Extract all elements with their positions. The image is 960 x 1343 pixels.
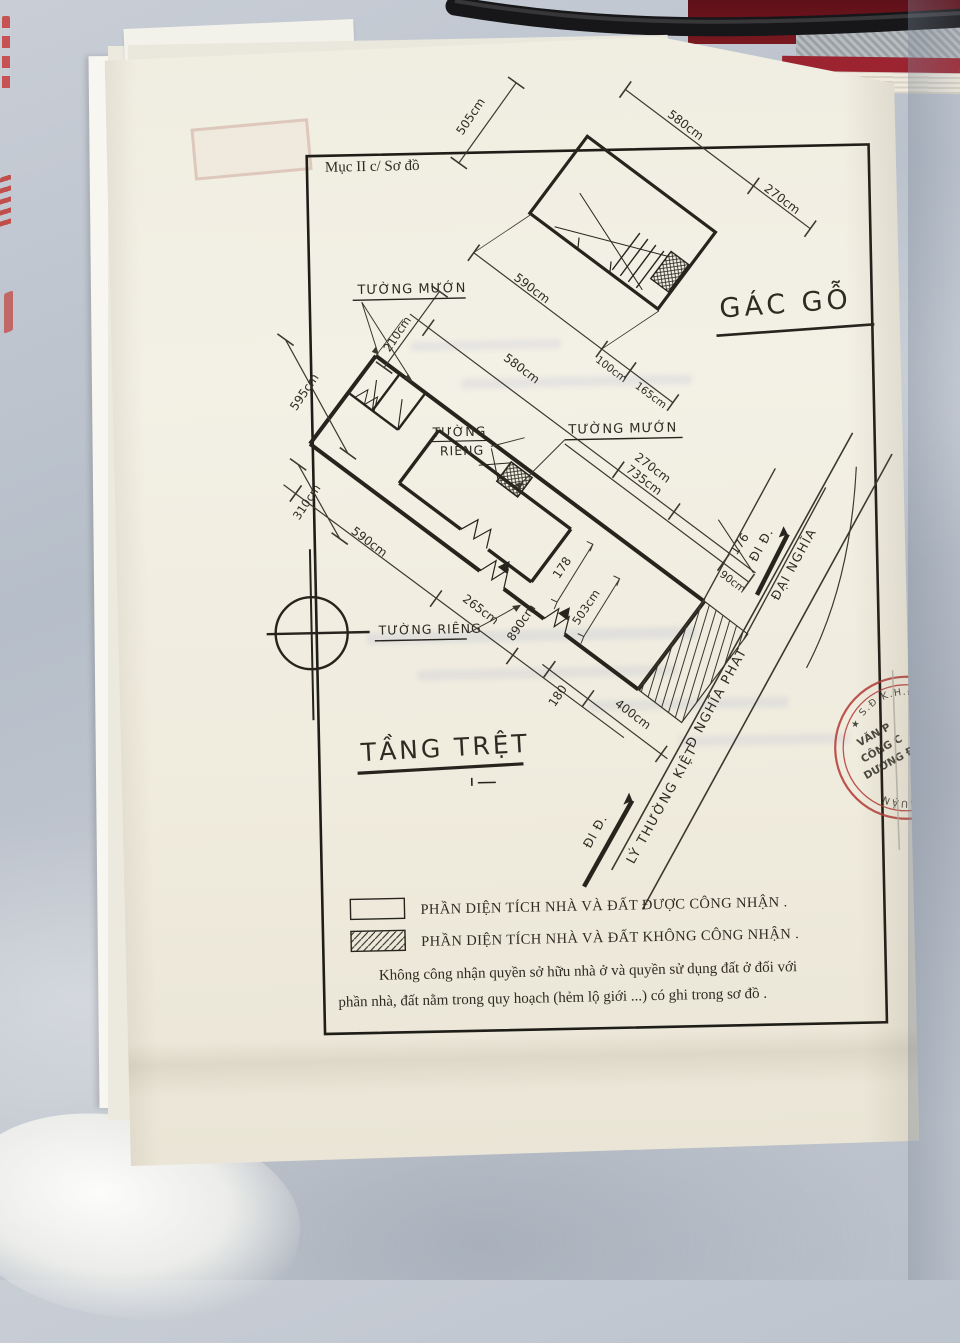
road-edge-1: [603, 433, 862, 870]
attic-title: GÁC GỖ: [718, 279, 853, 325]
label-wall-rented-top: TƯỜNG MƯỚN: [356, 280, 466, 298]
red-stamp-fragment-left2: [0, 174, 11, 232]
dim-90: 90cm: [717, 568, 748, 595]
dim-270-attic: 270cm: [761, 181, 802, 217]
inner-room-walls: [399, 430, 571, 582]
fabric-shadow-right: [908, 0, 960, 1280]
legend-not-recognized: PHẦN DIỆN TÍCH NHÀ VÀ ĐẤT KHÔNG CÔNG NHẬ…: [421, 925, 799, 950]
direction-right: ĐI Đ.: [746, 525, 776, 564]
inner-door-zigzag: [461, 515, 497, 549]
label-wall-private-bottom: TƯỜNG RIÊNG: [377, 621, 481, 638]
label-wall-private-2: RIÊNG: [440, 443, 485, 459]
street-dai-nghia: ĐẠI NGHĨA: [768, 525, 820, 602]
label-wall-rented-right: TƯỜNG MƯỚN: [567, 420, 677, 438]
dim-590: 590cm: [349, 524, 390, 560]
red-stamp-fragment-left3: [4, 290, 13, 334]
attic-outline: [530, 136, 716, 309]
dim-580-attic: 580cm: [665, 107, 706, 143]
attic-stair-braces: [555, 192, 668, 292]
street-ly-thuong-kiet: LÝ THƯỜNG KIỆT: [623, 743, 701, 866]
attic-title-underline: [716, 324, 874, 335]
legend-note-line2: phần nhà, đất nằm trong quy hoạch (hẻm l…: [338, 986, 767, 1011]
legend-swatch-not-recognized: [351, 930, 405, 951]
attic-dim-labels: 505cm 580cm 270cm 590cm 100cm 165cm: [453, 89, 807, 416]
site-plan-drawing: Mục II c/ Sơ đồ 505c: [104, 32, 919, 1168]
dim-595: 595cm: [287, 371, 322, 413]
legend: PHẦN DIỆN TÍCH NHÀ VÀ ĐẤT ĐƯỢC CÔNG NHẬN…: [336, 890, 800, 1011]
dim-503: 503cm: [569, 587, 603, 628]
ground-title: TẦNG TRỆT: [359, 726, 531, 767]
survey-document-page: Mục II c/ Sơ đồ 505c: [104, 32, 919, 1166]
label-wall-private-1: TƯỜNG: [431, 424, 486, 440]
legend-note-line1: Không công nhận quyền sở hữu nhà ở và qu…: [379, 959, 798, 984]
legend-recognized: PHẦN DIỆN TÍCH NHÀ VÀ ĐẤT ĐƯỢC CÔNG NHẬN…: [420, 893, 787, 918]
legend-swatch-recognized: [350, 898, 404, 919]
ground-floor-plan: 210cm 580cm 270cm 595cm 310cm 590cm 265c…: [259, 274, 759, 790]
ground-title-text: TẦNG TRỆT: [359, 726, 531, 767]
dim-178: 178: [550, 554, 574, 581]
dim-505: 505cm: [453, 95, 488, 137]
notary-stamp: ★ S.Đ.K.H.Đ. #102 PHÚ NHUẬN VĂN P CÔNG C…: [834, 675, 920, 820]
attic-stair-hatch: [651, 251, 689, 291]
dim-180: 180: [546, 682, 570, 709]
dim-310: 310cm: [290, 482, 324, 523]
road-curve: [802, 467, 860, 668]
attic-title-text: GÁC GỖ: [718, 279, 853, 325]
red-stamp-fragment-left: [2, 16, 10, 94]
dim-590-attic: 590cm: [511, 270, 552, 306]
section-label: Mục II c/ Sơ đồ: [325, 158, 420, 176]
ink-show-through: [361, 333, 849, 753]
